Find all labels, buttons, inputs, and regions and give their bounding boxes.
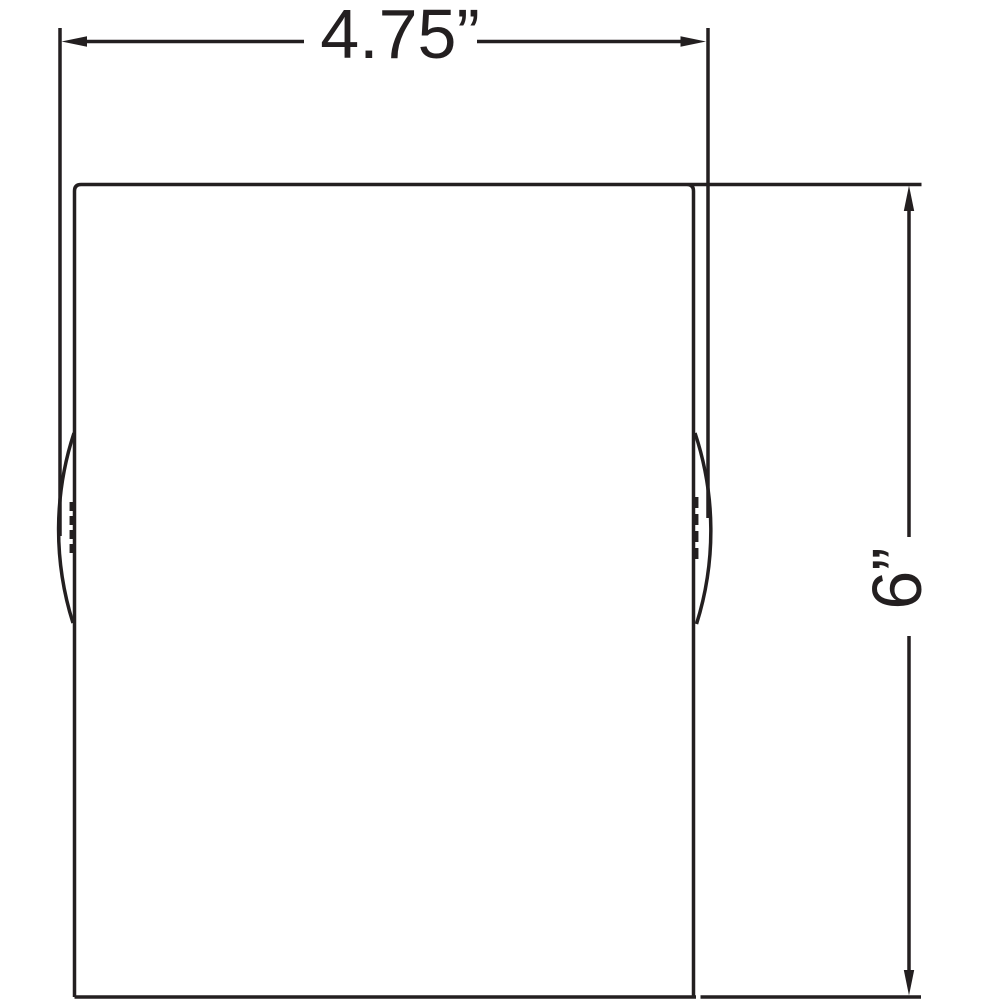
svg-text:6”: 6” — [858, 547, 936, 609]
svg-text:4.75”: 4.75” — [320, 0, 480, 73]
